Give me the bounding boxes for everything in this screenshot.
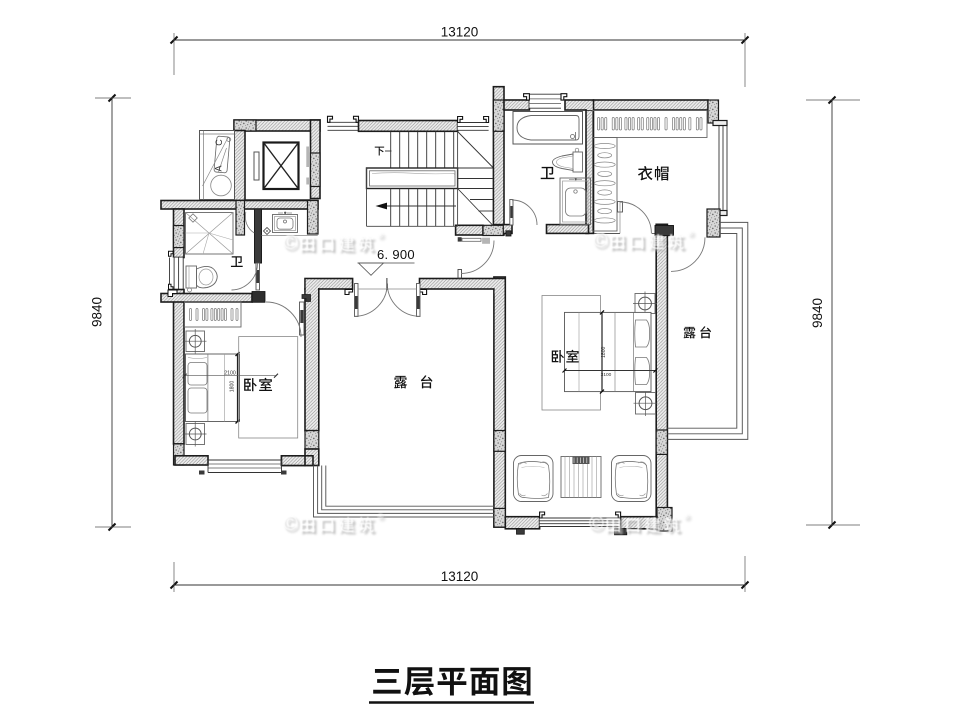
svg-text:9840: 9840 (810, 298, 825, 328)
svg-text:1800: 1800 (601, 347, 607, 358)
svg-text:©: © (589, 513, 604, 535)
svg-text:®: ® (688, 229, 694, 238)
svg-text:©: © (283, 232, 298, 254)
svg-text:13120: 13120 (441, 25, 479, 40)
svg-text:®: ® (378, 231, 384, 240)
svg-text:A: A (214, 165, 224, 171)
svg-text:2100: 2100 (224, 370, 236, 376)
svg-text:1800: 1800 (230, 381, 236, 393)
svg-text:13120: 13120 (441, 569, 479, 584)
svg-text:©: © (593, 230, 608, 252)
svg-text:3100: 3100 (601, 372, 612, 378)
svg-text:C: C (214, 139, 224, 146)
svg-text:6. 900: 6. 900 (377, 247, 415, 262)
svg-text:®: ® (684, 512, 690, 521)
svg-text:®: ® (378, 512, 384, 521)
svg-text:9840: 9840 (90, 297, 105, 327)
svg-text:©: © (283, 513, 298, 535)
